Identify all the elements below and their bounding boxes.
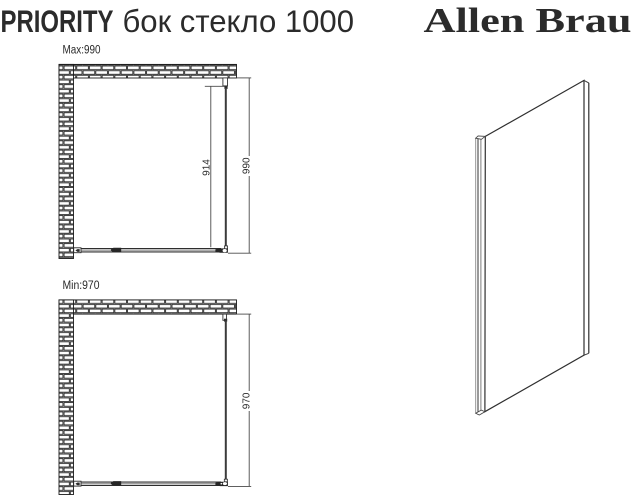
svg-text:914: 914 <box>201 159 212 176</box>
svg-text:Min:970: Min:970 <box>63 280 100 292</box>
svg-text:990: 990 <box>241 157 252 174</box>
svg-text:970: 970 <box>241 392 252 409</box>
svg-text:Allen Brau: Allen Brau <box>424 1 632 40</box>
svg-text:Max:990: Max:990 <box>63 45 101 57</box>
svg-text:PRIORITY: PRIORITY <box>1 4 114 39</box>
svg-text:бок стекло 1000: бок стекло 1000 <box>123 4 355 39</box>
